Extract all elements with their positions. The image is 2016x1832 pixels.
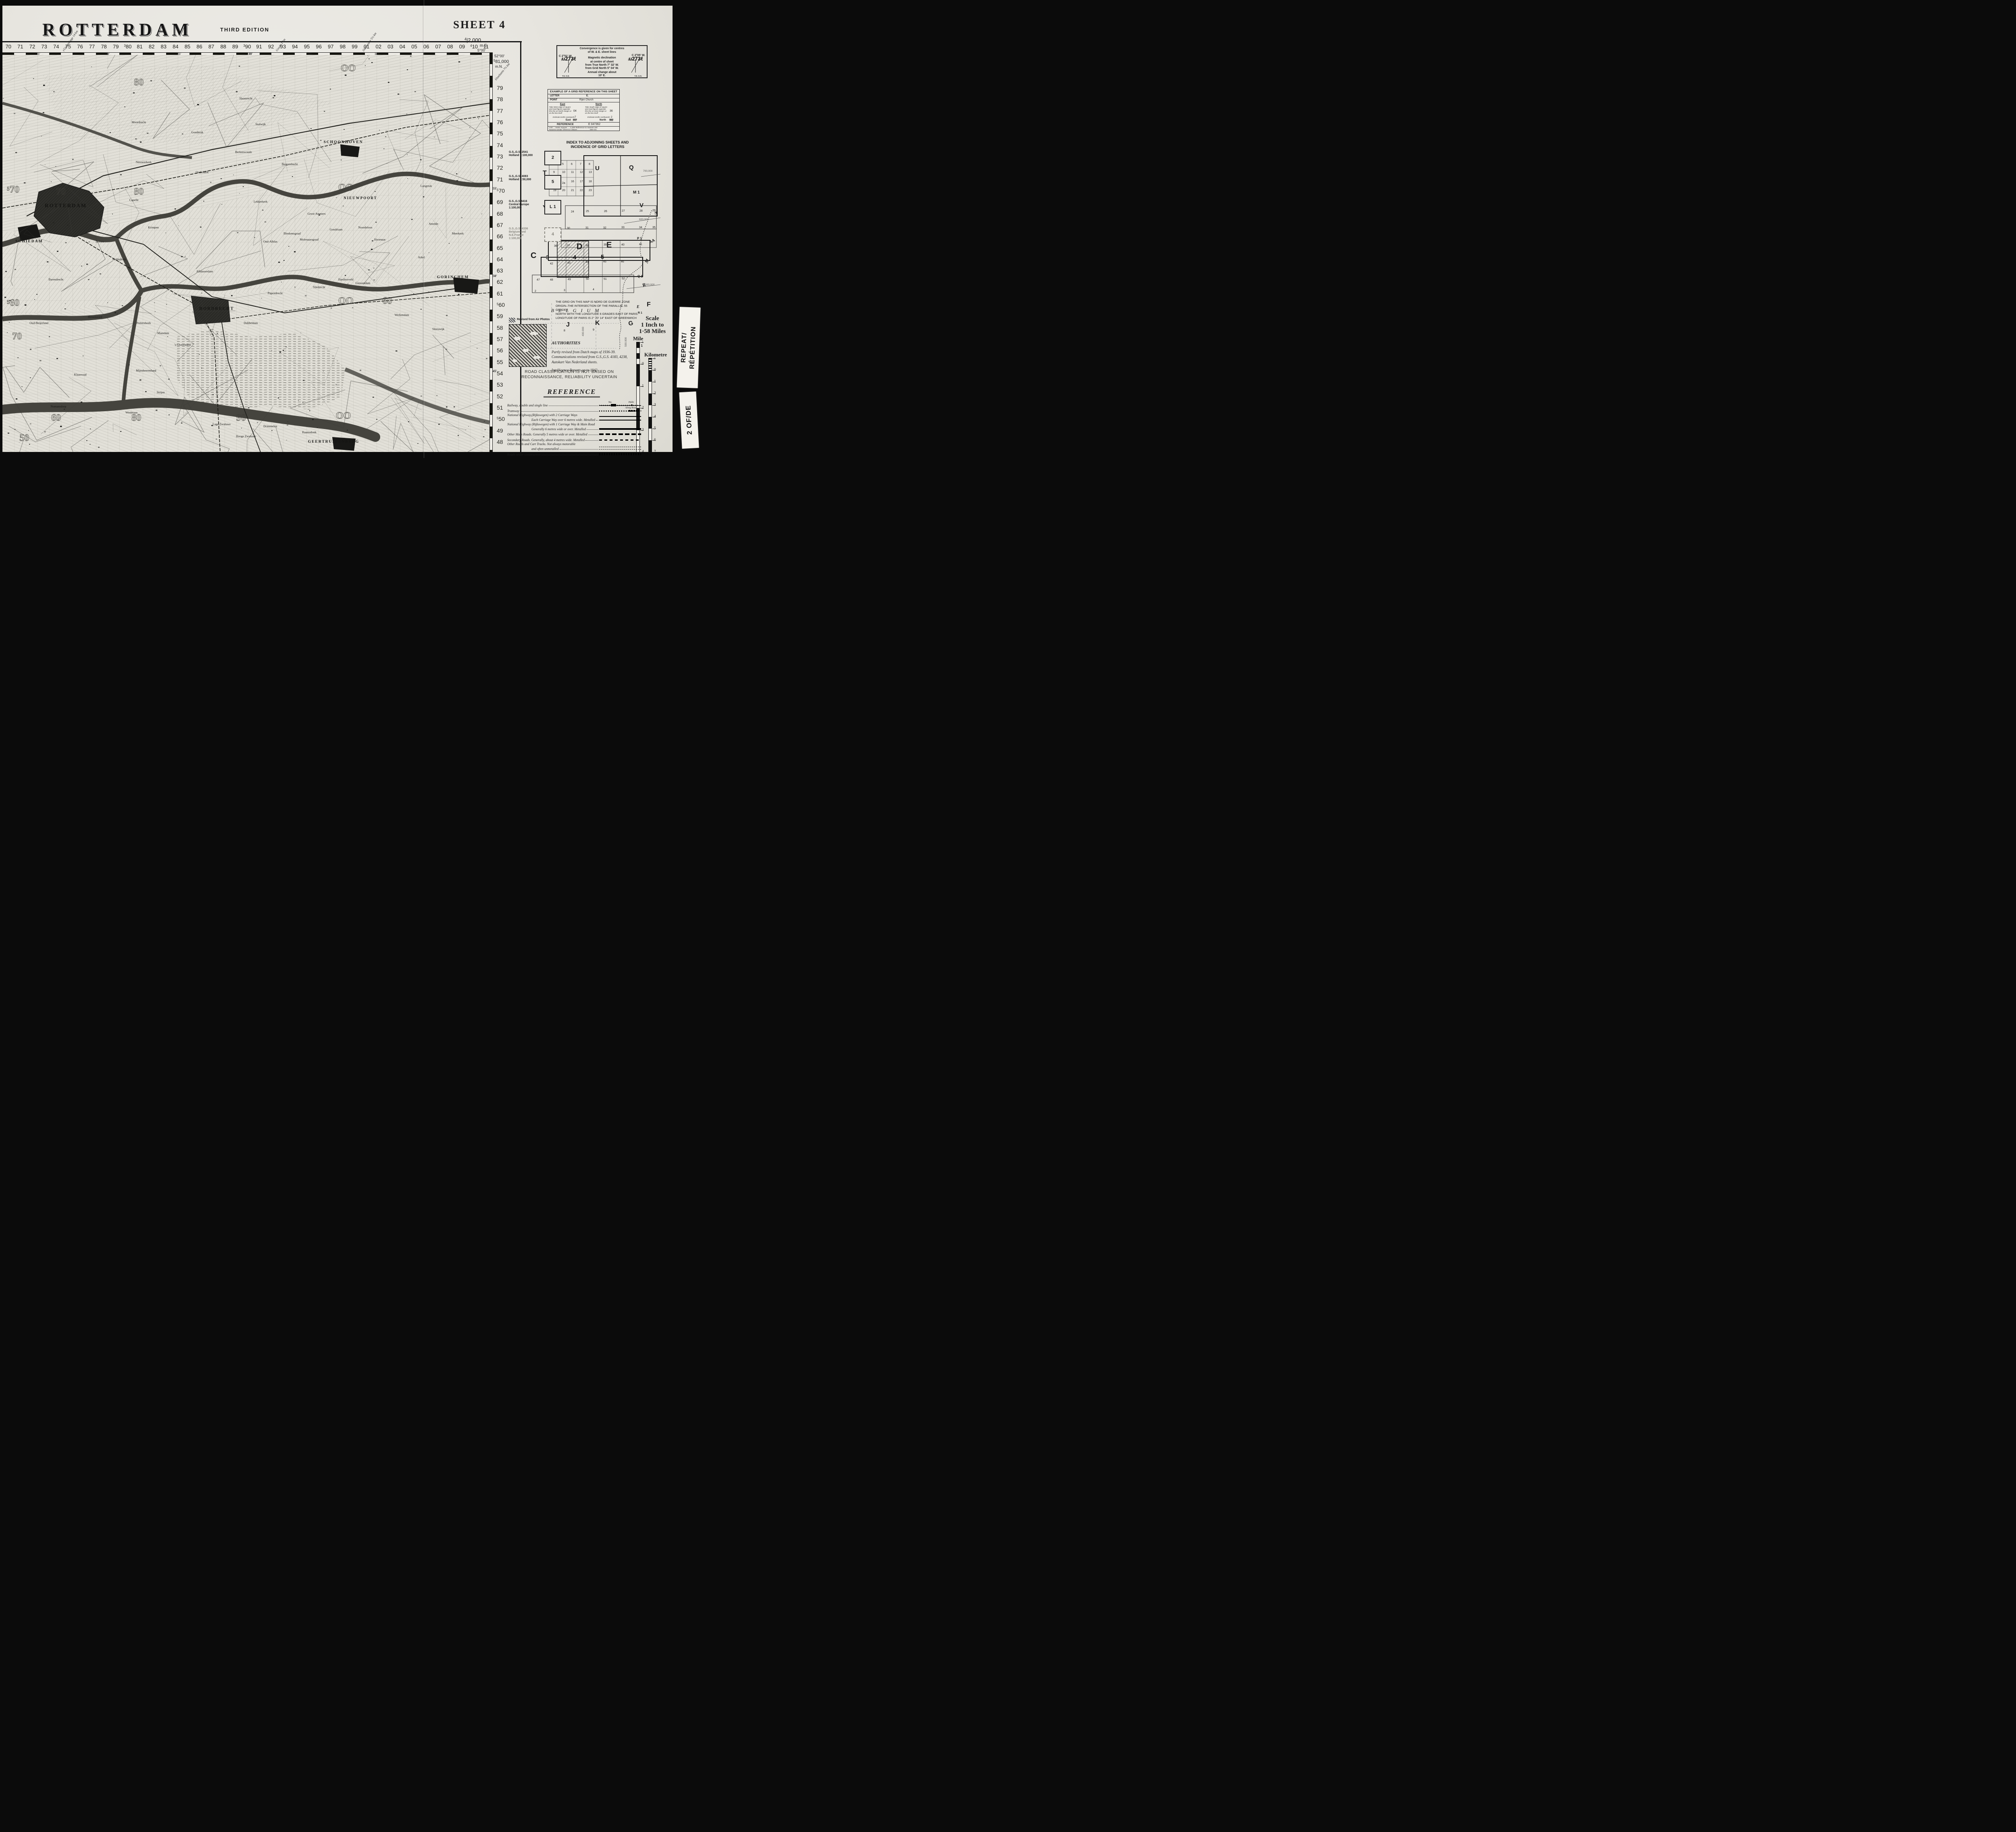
fold-crease: [423, 0, 424, 458]
corner-longitude: 5°00': [477, 48, 485, 52]
grid-origin-note: THE GRID ON THIS MAP IS NORD DE GUERRE Z…: [556, 300, 639, 320]
index-sheet-number: 7: [580, 163, 581, 166]
index-sheet-number: 44: [585, 261, 589, 264]
margin-northing: 69: [497, 199, 503, 205]
index-grid-letter-V: V: [639, 202, 644, 209]
map-grid-number: OO: [341, 63, 356, 74]
margin-northing: 51: [497, 404, 503, 411]
index-grid-letter-P1: P 1: [637, 237, 642, 240]
map-label-maasdam: Maasdam: [157, 331, 169, 335]
legend-item-row: Other Main Roads. Generally 5 metres wid…: [507, 431, 641, 436]
road-note-line1: ROAD CLASSIFICATION IS NOT BASED ON: [520, 369, 619, 375]
margin-northing: 57: [497, 336, 503, 342]
map-label-dubbeldam: Dubbeldam: [244, 321, 258, 325]
index-sheet-number: 32: [603, 227, 606, 229]
index-scale-annotation: 400.000: [582, 327, 585, 336]
scale-bar-tick-label: 1: [654, 380, 656, 384]
ruler-easting: 85: [185, 44, 190, 50]
road-note-line2: RECONNAISSANCE, RELIABILITY UNCERTAIN: [520, 375, 619, 380]
margin-northing: 62: [497, 279, 503, 285]
declination-line3: from Grid North 5° 04' W.: [557, 67, 647, 70]
ruler-easting: 78: [101, 44, 106, 50]
map-label-drimmelen: Drimmelen: [263, 424, 277, 428]
map-label-nieuwpoort: NIEUWPOORT: [344, 196, 377, 200]
reference-legend: Railway, double and single lineSta.Halte…: [507, 402, 641, 458]
map-label-moordrecht: Moordrecht: [132, 121, 146, 124]
map-label-werkendam: Werkendam: [395, 313, 409, 317]
margin-northing: 48: [497, 439, 503, 445]
map-label-gorinchem: GORINCHEM: [437, 275, 469, 279]
index-sheet-number: 10: [562, 171, 565, 174]
map-label-hardinxveld: Hardinxveld: [338, 277, 354, 281]
margin-northing: 58: [497, 325, 503, 331]
legend-symbol-construction: [599, 453, 641, 455]
map-label-oudbeijerland: Oud-Beijerland: [29, 321, 48, 325]
ruler-easting: 410: [470, 44, 478, 50]
legend-item-text-line1: Other Roads and Cart Tracks. Not always …: [507, 442, 641, 446]
ruler-easting: 05: [411, 44, 417, 50]
map-grid-number: 570: [7, 184, 19, 195]
scale-bar-tick-label: 6: [654, 438, 656, 442]
ruler-easting: 82: [149, 44, 154, 50]
index-sheet-number: 27: [622, 210, 625, 212]
scale-bar-segment: [649, 417, 652, 429]
legend-symbol-cart: [599, 447, 641, 450]
margin-northing: 65: [497, 245, 503, 251]
index-sheet-number: 19: [553, 189, 556, 192]
map-label-goudriaan: Goudriaan: [330, 228, 343, 231]
ruler-easting: 04: [400, 44, 405, 50]
ruler-easting: 98: [340, 44, 346, 50]
index-sheet-number: 40: [621, 244, 625, 246]
legend-item-row: Each Carriage Way over 6 metres wide. Me…: [507, 417, 641, 422]
index-source-sheet-box: 5: [544, 175, 561, 189]
map-label-nieuwerkerk: Nieuwerkerk: [136, 160, 152, 164]
legend-item-text: Generally 6 metres wide or over. Metalle…: [531, 427, 586, 431]
index-sheet-number: 9: [553, 171, 555, 174]
ruler-easting: 77: [89, 44, 95, 50]
index-sheet-number: 20: [562, 189, 565, 192]
legend-symbol-secondary: [599, 439, 641, 441]
gridref-title: EXAMPLE OF A GRID REFERENCE ON THIS SHEE…: [548, 90, 619, 93]
ruler-easting: 86: [196, 44, 202, 50]
legend-item-row: TramwayAlong Road: [507, 408, 641, 413]
convergence-declination-box: Convergence is given for centres of W. &…: [556, 45, 648, 78]
margin-northing: 560: [497, 302, 505, 308]
index-sheet-number: 2: [535, 290, 536, 293]
index-sheet-number: 28: [639, 210, 643, 212]
index-grid-letter-AA: AA: [649, 238, 656, 245]
index-sheet-number: 11: [571, 171, 574, 174]
map-grid-number: OO: [336, 411, 351, 422]
map-label-giessendam: Giessendam: [356, 281, 371, 285]
scale-bar-tick-label: 1: [642, 384, 644, 388]
map-label-hoogezwaluwe: Hooge Zwaluwe: [236, 434, 256, 438]
margin-northing: 52: [497, 393, 503, 400]
index-grid-letter-4: 4: [573, 254, 577, 261]
index-sheet-number: 24: [571, 210, 574, 213]
corner-northing-unit: m.N.: [495, 65, 503, 69]
legend-symbol-wrap: [599, 426, 641, 431]
map-label-krimpen: Krimpen: [148, 226, 159, 229]
map-grid-number: 560: [7, 298, 19, 308]
margin-northing: 55: [497, 359, 503, 365]
grid-note-line1: THE GRID ON THIS MAP IS NORD DE GUERRE Z…: [556, 300, 639, 304]
repeat-sticker: REPEAT/ RÉPÉTITION: [677, 307, 701, 388]
ruler-easting: 83: [160, 44, 166, 50]
gridref-north-label: North: [600, 119, 606, 121]
index-grid-letter-C: C: [531, 251, 536, 260]
margin-northing: 61: [497, 290, 503, 297]
margin-northing: 75: [497, 130, 503, 137]
scale-miles: 1·58 Miles: [631, 328, 673, 335]
legend-item-row: Path: [507, 457, 641, 458]
sheet-frame-top: [2, 41, 522, 42]
legend-item-row: Generally 6 metres wide or over. Metalle…: [507, 426, 641, 431]
gridref-point-label: POINT: [550, 99, 557, 101]
legend-symbol-othermain: [599, 433, 641, 435]
map-label-schiedam: SCHIEDAM: [15, 239, 43, 244]
legend-symbol-sublabel: Halte: [629, 401, 634, 404]
index-grid-letter-J: J: [566, 321, 570, 328]
margin-northing: 73: [497, 153, 503, 160]
index-sheet-number: 16: [571, 180, 574, 183]
scale-bar-segment: [649, 393, 652, 405]
gridref-north-tenths: 2: [611, 116, 612, 119]
map-label-molenaarsgraaf: Molenaarsgraaf: [300, 238, 319, 241]
map-label-grootammers: Groot Ammers: [308, 212, 326, 216]
ruler-easting: 92: [268, 44, 274, 50]
convergence-note2: of W. & E. sheet lines: [557, 51, 647, 54]
legend-symbol-dual: [599, 416, 641, 421]
map-label-noordeloos: Noordeloos: [358, 226, 372, 229]
map-label-lagezwaluwe: Lage Zwaluwe: [212, 423, 231, 426]
index-sheet-number: 18: [589, 180, 592, 183]
legend-item-row: Secondary Roads. Generally, about 4 metr…: [507, 437, 641, 442]
index-title-line2: INCIDENCE OF GRID LETTERS: [558, 145, 637, 149]
legend-item-text: Tramway: [507, 409, 519, 413]
legend-symbol-sublabel: Sta.: [608, 401, 612, 404]
legend-item-text-line1: National Highway (Rijkswegen) with 1 Car…: [507, 423, 641, 426]
gridref-reference-label: REFERENCE: [557, 123, 574, 126]
ruler-easting: 91: [256, 44, 262, 50]
index-sheet-number: 46: [621, 260, 624, 263]
map-label-papendrecht: Papendrecht: [268, 291, 283, 295]
index-source-sheet-box: 2: [544, 151, 561, 165]
index-sheet-number: 36: [554, 245, 557, 248]
grid-note-line3: NORTH WITH THE LONGITUDE 6 GRADES EAST O…: [556, 312, 639, 316]
scale-bar-segment: [649, 370, 652, 382]
gridref-letter-label: LETTER: [550, 95, 559, 97]
ruler-easting: 76: [77, 44, 83, 50]
map-label-capelle: Capelle: [129, 198, 139, 202]
map-grid-number: OO: [338, 296, 353, 306]
index-sheet-number: 9: [593, 329, 594, 331]
index-sheet-number: 35: [652, 226, 656, 229]
legend-symbol-wrap: [599, 431, 641, 436]
legend-leader-dots: [560, 449, 598, 450]
declination-line1: at centre of sheet: [557, 60, 647, 63]
scale-bar-tick-label: 7: [654, 450, 656, 454]
ruler-easting: 03: [387, 44, 393, 50]
scale-bar-subsegment: [649, 363, 652, 364]
map-grid-number: 80: [131, 413, 141, 424]
map-label-sgravendeel: 's-Gravendeel: [174, 343, 191, 347]
air-photo-hatch-chip: [509, 318, 515, 323]
map-label-ameide: Ameide: [429, 222, 438, 225]
index-source-sheet-box: 4: [544, 227, 561, 242]
index-sheet-number: 23: [589, 189, 592, 192]
index-sheet-number: 42: [550, 262, 553, 265]
map-label-schoonhoven: SCHOONHOVEN: [324, 140, 363, 144]
map-label-haastrecht: Haastrecht: [240, 97, 252, 100]
index-grid-letter-M1: M 1: [633, 190, 640, 195]
legend-item-row: and often unmetalled: [507, 446, 641, 451]
index-sheet-number: 6: [571, 163, 573, 166]
index-source-sheet-box: L 1: [544, 200, 561, 214]
legend-leader-dots: [549, 406, 598, 406]
index-grid-letter-Q: Q: [629, 164, 634, 171]
index-source-0: G.S.,G.S. 2541Holland 1:100,0002: [509, 151, 561, 157]
map-label-geertruidenberg: GEERTRUIDENBERG: [308, 440, 359, 444]
gridref-footer2: Nearest similar reference distant.......…: [549, 129, 597, 131]
map-label-strijen: Strijen: [157, 391, 165, 394]
ruler-easting: 87: [208, 44, 214, 50]
index-source-2: G.S.,G.S.4416Central Europe1:100,000L 1: [509, 200, 561, 210]
declination-heading: Magnetic declination: [557, 56, 647, 59]
legend-symbol-main: [599, 428, 641, 430]
index-title-line1: INDEX TO ADJOINING SHEETS AND: [558, 140, 637, 145]
convergence-note: Convergence is given for centres: [557, 47, 647, 50]
index-sheet-number: 52: [622, 277, 625, 280]
legend-leader-dots: [587, 429, 598, 430]
map-label-klaaswaal: Klaaswaal: [74, 373, 87, 376]
gridref-east-heading: East: [560, 103, 565, 106]
margin-northing: 72: [497, 164, 503, 171]
legend-item-main: National Highway (Rijkswegen) with 1 Car…: [507, 423, 641, 431]
margin-northing: 59: [497, 313, 503, 319]
of-de-sticker-text: 2 OF/DE: [684, 405, 694, 435]
legend-symbol-wrap: [599, 452, 641, 456]
edition-label: THIRD EDITION: [220, 27, 269, 33]
index-sheet-number: 50: [586, 278, 589, 281]
margin-northing: 71: [497, 176, 503, 183]
gridref-point-value: Rijen Church: [579, 99, 594, 101]
road-classification-note: ROAD CLASSIFICATION IS NOT BASED ON RECO…: [520, 369, 619, 380]
scale-bar-tick-label: 2: [654, 391, 656, 396]
scale-bar-tick-label: 2: [642, 406, 644, 410]
ruler-easting: 95: [304, 44, 310, 50]
index-sheet-number: 41: [639, 243, 642, 246]
gridref-north-total: 362: [609, 119, 613, 122]
margin-northing: 550: [497, 416, 505, 422]
margin-northing: 74: [497, 142, 503, 148]
right-grid-margin: 7978777675747372715706968676665646362615…: [493, 82, 519, 448]
index-sheet-number: 30: [567, 227, 570, 230]
scale-inch: 1 Inch to: [631, 322, 673, 328]
index-sheet-number: 13: [589, 171, 592, 174]
grid-note-line2: ORIGIN–THE INTERSECTION OF THE PARALLEL …: [556, 304, 639, 312]
legend-symbol-wrap: [599, 437, 641, 442]
corner-easting-unit: m.E.: [480, 44, 488, 48]
scanned-map-sheet: ROTTERDAM THIRD EDITION SHEET 4 70717273…: [0, 0, 714, 458]
legend-item-railway: Railway, double and single lineSta.Halte: [507, 402, 641, 407]
map-label-dordrecht: DORDRECHT: [199, 307, 234, 311]
authorities-block: AUTHORITIES Partly revised from Dutch ma…: [552, 341, 644, 373]
index-source-1: G.S.,G.S. 4083Holland 1:50,0005: [509, 175, 561, 181]
ruler-easting: 79: [113, 44, 119, 50]
margin-northing: 76: [497, 119, 503, 125]
ruler-easting: 81: [137, 44, 142, 50]
index-sheet-number: 2a: [562, 182, 565, 185]
scale-bar-tick-label: 4: [642, 450, 644, 454]
index-grid-letter-D: D: [577, 242, 582, 251]
map-label-stolwijk: Stolwijk: [256, 123, 266, 126]
legend-item-text: Roads under construction: [507, 453, 541, 456]
map-label-puttershoek: Puttershoek: [137, 321, 151, 325]
gridref-east-square: 04: [573, 110, 577, 112]
index-grid-letter-5: 5: [601, 254, 604, 260]
scale-bar-segment: [649, 440, 652, 452]
gridref-east-estimate: Estimate tenths eastwards: [553, 116, 575, 118]
repeat-sticker-text: REPEAT/ RÉPÉTITION: [679, 326, 698, 369]
gridref-north-estimate: Estimate tenths northwards: [587, 116, 610, 118]
annual-change-line1: Annual change about: [557, 71, 647, 74]
index-grid-letter-F: F: [647, 301, 651, 308]
map-label-ouderkerk: Ouderkerk: [196, 170, 208, 174]
index-sheet-number: 37: [567, 244, 570, 247]
index-sheet-number: 43: [567, 262, 571, 264]
authorities-line2: Communications revised from G.S.,G.S. 41…: [552, 354, 644, 360]
ruler-easting: 09: [459, 44, 465, 50]
margin-northing: 56: [497, 347, 503, 354]
reference-heading: REFERENCE: [544, 388, 600, 398]
index-title: INDEX TO ADJOINING SHEETS AND INCIDENCE …: [558, 140, 637, 149]
map-grid-number: 60: [51, 413, 61, 424]
map-border-right: [489, 52, 493, 452]
map-label-barendrecht: Barendrecht: [49, 277, 64, 281]
scale-bar-subsegment: [649, 368, 652, 369]
index-sheet-number: 22: [580, 189, 583, 192]
legend-leader-dots: [520, 411, 598, 412]
index-sheet-number: 34: [639, 226, 642, 229]
margin-minute: 45': [493, 369, 497, 373]
ruler-easting: 390: [244, 44, 251, 50]
index-sheet-number: 17: [580, 180, 583, 183]
index-sheet-number: 5: [562, 163, 564, 166]
map-grid-number: 80: [134, 77, 144, 88]
index-sheet-number: 4: [593, 288, 594, 291]
index-sheet-number: 47: [537, 279, 540, 281]
margin-northing: 54: [497, 370, 503, 377]
index-sheet-number: 38: [585, 244, 589, 247]
map-area: ROTTERDAMSCHIEDAMSCHOONHOVENNIEUWPOORTGO…: [2, 55, 489, 452]
air-photo-label: Revised from Air Photos: [517, 318, 550, 321]
margin-northing: 77: [497, 108, 503, 114]
ruler-easting: 71: [17, 44, 23, 50]
map-label-ridderkerk: Ridderkerk: [112, 258, 126, 261]
index-grid-letter-M: M: [644, 258, 651, 264]
index-source-3: G.S.,G.S. 4336Belgium andN.E.France1:100…: [509, 227, 561, 240]
index-sheet-number: 21: [571, 189, 574, 192]
scale-statement: Scale 1 Inch to 1·58 Miles: [631, 315, 673, 335]
map-label-berkenwoude: Berkenwoude: [235, 150, 252, 154]
index-grid-letter-E: E: [606, 241, 612, 250]
map-grid-number: 90: [236, 413, 246, 424]
scale-bar-subsegment: [649, 365, 652, 366]
map-label-hoornaar: Hoornaar: [374, 238, 385, 241]
map-label-raamsdonk: Raamsdonk: [302, 430, 316, 434]
kilometre-bar-label: Kilometre: [644, 352, 667, 358]
gridref-east-total: 047: [573, 119, 577, 122]
index-sheet-number: 48: [550, 279, 553, 281]
index-sheet-number: 31: [585, 227, 589, 229]
ruler-easting: 89: [232, 44, 238, 50]
legend-item-text: Railway, double and single line: [507, 404, 548, 407]
ruler-easting: 99: [352, 44, 357, 50]
legend-item-construction: Roads under construction: [507, 452, 641, 456]
margin-northing: 78: [497, 96, 503, 102]
corner-easting: 4|2,000: [464, 37, 481, 43]
map-label-lekkerkerk: Lekkerkerk: [254, 200, 268, 204]
map-label-bleskensgraaf: Bleskensgraaf: [284, 232, 301, 235]
index-grid-letter-U: U: [595, 165, 600, 172]
map-grid-number: 50: [19, 433, 29, 443]
index-grid-letter-Q1: Q 1: [637, 275, 643, 278]
legend-item-text: Secondary Roads. Generally, about 4 metr…: [507, 438, 585, 442]
scale-bar-tick-label: 3: [642, 428, 644, 432]
legend-leader-dots: [541, 455, 598, 455]
map-label-alblasserdam: Alblasserdam: [196, 269, 213, 273]
index-scale-annotation: 500,000: [645, 283, 655, 286]
gridref-east-label: East: [566, 119, 571, 121]
margin-northing: 79: [497, 85, 503, 91]
scale-bar-subsegment: [649, 361, 652, 362]
map-grid-number: 70: [56, 186, 66, 197]
annual-change-line2: 10' E.: [557, 74, 647, 77]
legend-symbol-tramway: [599, 410, 641, 412]
map-label-sliedrecht: Sliedrecht: [313, 285, 325, 289]
map-label-bolnes: Bolnes: [96, 239, 104, 243]
map-sheet-paper: ROTTERDAM THIRD EDITION SHEET 4 70717273…: [2, 6, 673, 452]
ruler-easting: 06: [423, 44, 429, 50]
ruler-easting: 02: [375, 44, 381, 50]
legend-symbol-sublabel: Along Road: [625, 407, 637, 409]
margin-northing: 53: [497, 381, 503, 388]
map-place-labels: ROTTERDAMSCHIEDAMSCHOONHOVENNIEUWPOORTGO…: [2, 55, 489, 452]
map-label-sleeuwijk: Sleeuwijk: [432, 327, 444, 331]
ruler-easting: 07: [435, 44, 441, 50]
kilometre-scale-bar: 101234567: [648, 358, 652, 452]
index-sheet-number: 33: [621, 226, 625, 229]
index-sheet-number: 3: [564, 289, 565, 292]
sheet-title: ROTTERDAM: [42, 19, 192, 40]
map-grid-number: 70: [12, 331, 22, 342]
legend-symbol-wrap: [599, 457, 641, 458]
legend-item-dual: National Highway,(Rijkswegen) with 2 Car…: [507, 413, 641, 422]
legend-item-cart: Other Roads and Cart Tracks. Not always …: [507, 442, 641, 451]
ruler-easting: 88: [221, 44, 226, 50]
index-sheet-number: 8: [589, 163, 590, 166]
gridref-letter-value: E.: [586, 95, 589, 97]
legend-symbol-wrap: [599, 446, 641, 451]
map-label-oudalblas: Oud-Alblas: [263, 239, 277, 243]
index-sheet-number: 12: [580, 171, 583, 174]
top-grid-ruler: 7071727374757677787938081828384858687888…: [2, 43, 492, 52]
authorities-heading: AUTHORITIES: [552, 341, 644, 346]
gridref-north-square: 36: [610, 110, 613, 112]
legend-leader-dots: [588, 435, 598, 435]
